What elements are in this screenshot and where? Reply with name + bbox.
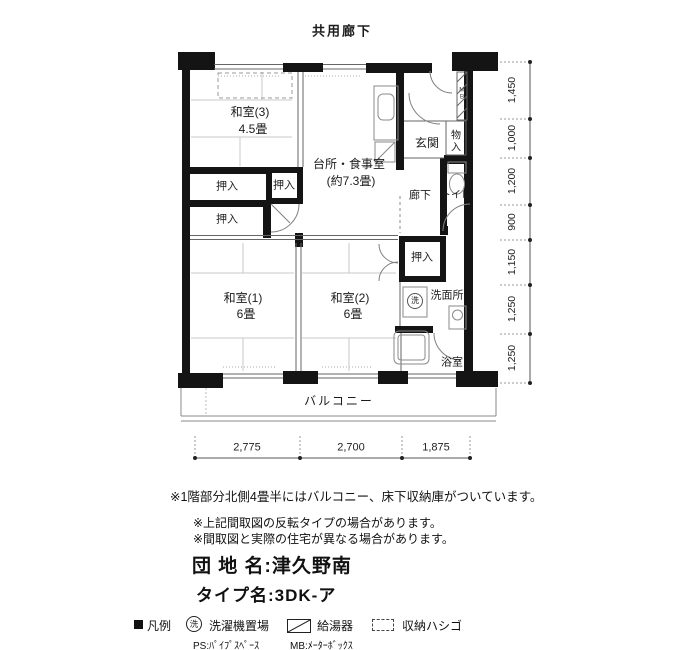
legend-sen-mark: 洗 [190, 618, 199, 630]
note-3: ※間取図と実際の住宅が異なる場合があります。 [193, 530, 454, 547]
room-washitsu2-size: 6畳 [344, 308, 363, 320]
dim-right-4: 900 [507, 213, 518, 231]
washing-machine-legend-icon: 洗 [186, 616, 202, 632]
dim-bottom-2: 2,700 [337, 443, 365, 454]
dim-bottom-1: 2,775 [233, 443, 261, 454]
room-monoiri-label: 物入 [450, 131, 462, 154]
legend-kyutoki-label: 給湯器 [317, 617, 353, 634]
common-corridor-label: 共用廊下 [312, 25, 372, 38]
legend-bullet-icon [134, 620, 143, 629]
room-washitsu3-size: 4.5畳 [239, 123, 268, 135]
entrance-door-arc [430, 71, 452, 93]
washing-machine-mark: 洗 [411, 297, 419, 305]
water-heater-legend-icon [287, 619, 311, 633]
room-yokushitsu-label: 浴室 [441, 358, 463, 369]
room-rouka-label: 廊下 [409, 191, 431, 202]
danchi-name: 団 地 名:津久野南 [192, 551, 352, 578]
dim-right-6: 1,250 [507, 296, 518, 322]
genkan-door-arc [409, 93, 440, 124]
dim-bottom-3: 1,875 [422, 443, 450, 454]
closet-label-nw1: 押入 [216, 182, 238, 193]
fixtures [374, 86, 466, 364]
meter-box-mark: MB [458, 87, 466, 102]
closet-door-arc-top [379, 244, 398, 263]
dim-right-5: 1,150 [507, 249, 518, 275]
closet-label-center: 押入 [273, 181, 295, 192]
room-senmenjo-label: 洗面所 [431, 291, 464, 302]
micro-dim-marks [218, 76, 372, 367]
note-1: ※1階部分北側4畳半にはバルコニー、床下収納庫がついています。 [170, 486, 542, 505]
legend-sentakuki-label: 洗濯機置場 [209, 617, 269, 634]
storage-ladder-legend-icon [372, 619, 394, 631]
room-washitsu1-name: 和室(1) [224, 292, 263, 304]
legend-heading: 凡例 [147, 617, 171, 634]
legend-ps-label: PS:ﾊﾟｲﾌﾟｽﾍﾟｰｽ [193, 637, 259, 650]
dim-right-1: 1,450 [507, 77, 518, 103]
legend-mb-label: MB:ﾒｰﾀｰﾎﾞｯｸｽ [290, 637, 353, 650]
kitchen-counter-icon [374, 86, 398, 140]
bathtub-icon [394, 331, 429, 364]
type-name: タイプ名:3DK-ア [196, 581, 336, 606]
legend-shunou-label: 収納ハシゴ [402, 617, 462, 634]
dk-door-arc [271, 204, 299, 232]
room-washitsu3-name: 和室(3) [231, 106, 270, 118]
storage-ladder-icon [218, 73, 292, 98]
balcony-label: バルコニー [304, 395, 374, 407]
dim-right-7: 1,250 [507, 345, 518, 371]
room-washitsu1-size: 6畳 [237, 308, 256, 320]
note-2: ※上記間取図の反転タイプの場合があります。 [193, 514, 442, 531]
room-dk-size: (約7.3畳) [327, 175, 376, 187]
floorplan-page: 共用廊下 和室(3) 4.5畳 台所・食事室 (約7.3畳) 押入 押入 押入 … [0, 0, 700, 650]
dim-right-2: 1,000 [507, 125, 518, 151]
room-washitsu2-name: 和室(2) [331, 292, 370, 304]
closet-label-nw2: 押入 [216, 215, 238, 226]
dim-right-3: 1,200 [507, 168, 518, 194]
room-toilet-label: トイレ [441, 191, 471, 201]
room-genkan-label: 玄関 [415, 137, 439, 149]
room-dk-name: 台所・食事室 [313, 158, 385, 170]
washbasin-icon [449, 306, 466, 329]
closet-label-se: 押入 [411, 253, 433, 264]
closet-door-arc-bottom [379, 262, 398, 281]
